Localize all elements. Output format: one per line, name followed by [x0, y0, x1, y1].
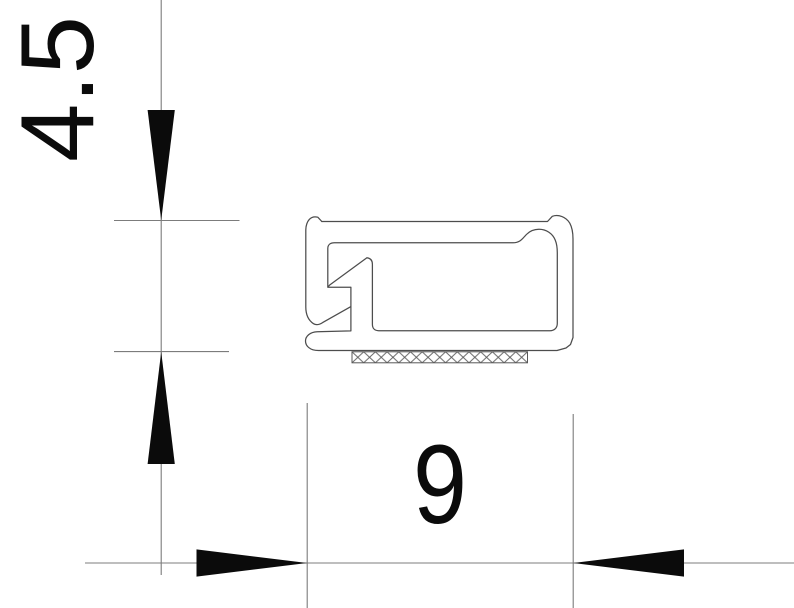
profile-dimension-drawing: 4.5 9 [0, 0, 794, 608]
profile-outline [306, 216, 574, 351]
technical-drawing-canvas: 4.5 9 [0, 0, 794, 608]
arrow-down-icon [148, 110, 175, 220]
arrow-up-icon [148, 352, 175, 464]
width-dimension-label: 9 [413, 422, 467, 547]
height-dimension-label: 4.5 [0, 16, 116, 162]
adhesive-strip-hatch [352, 352, 528, 363]
dimension-labels-group: 4.5 9 [0, 16, 467, 547]
arrow-right-icon [197, 549, 308, 576]
profile-cross-section [306, 216, 574, 363]
arrow-left-icon [573, 549, 684, 576]
